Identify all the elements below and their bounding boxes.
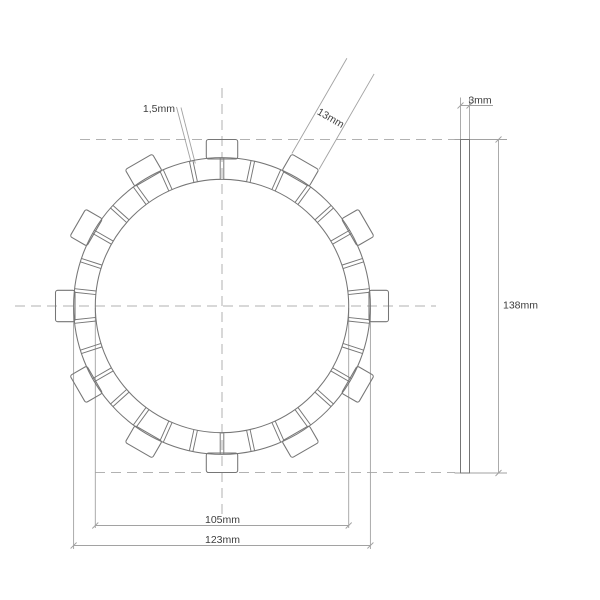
drawing-page: 1,5mm 13mm 3mm 138mm 105mm 123mm (0, 0, 600, 600)
dimension-layer (71, 58, 507, 549)
outer-diameter-label: 123mm (205, 534, 240, 546)
technical-drawing-canvas: 1,5mm 13mm 3mm 138mm 105mm 123mm (0, 0, 600, 600)
inner-diameter-label: 105mm (205, 514, 240, 526)
overall-diameter-label: 138mm (503, 300, 538, 312)
dimension-labels: 1,5mm 13mm 3mm 138mm 105mm 123mm (143, 95, 538, 547)
groove-width-label: 1,5mm (143, 103, 175, 115)
tab-width-label: 13mm (315, 106, 346, 131)
side-view-plate (461, 140, 470, 474)
thickness-label: 3mm (468, 95, 492, 107)
